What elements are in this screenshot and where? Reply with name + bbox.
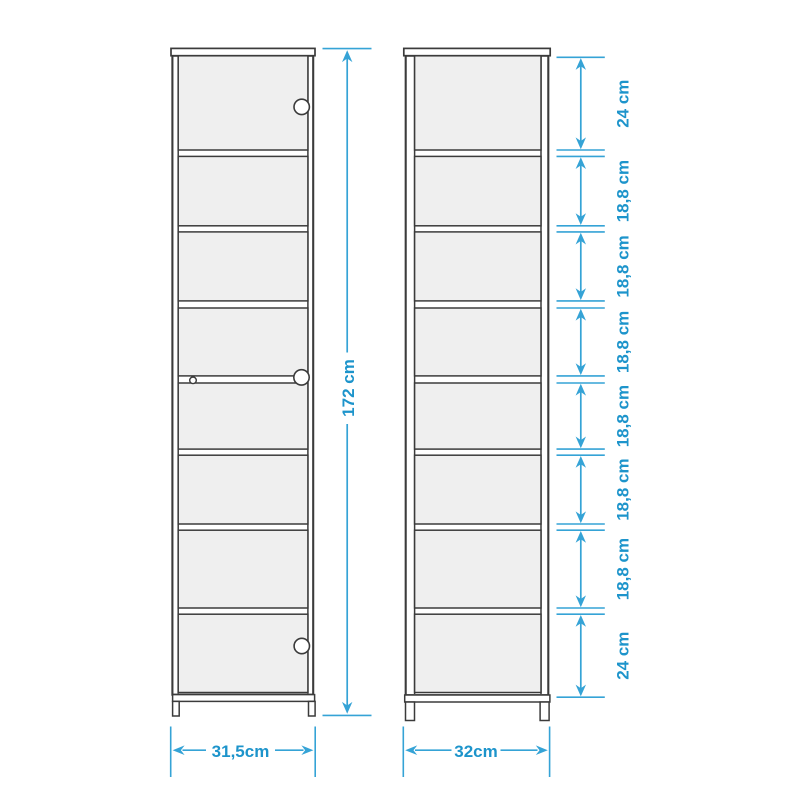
svg-text:18,8 cm: 18,8 cm <box>613 385 632 447</box>
svg-text:18,8 cm: 18,8 cm <box>613 458 632 520</box>
svg-text:24 cm: 24 cm <box>613 80 632 128</box>
svg-text:24 cm: 24 cm <box>613 632 632 680</box>
svg-text:18,8 cm: 18,8 cm <box>613 235 632 297</box>
svg-text:31,5cm: 31,5cm <box>212 742 270 761</box>
svg-text:18,8 cm: 18,8 cm <box>613 160 632 222</box>
svg-text:32cm: 32cm <box>454 742 497 761</box>
svg-text:18,8 cm: 18,8 cm <box>613 311 632 373</box>
svg-text:172 cm: 172 cm <box>339 359 358 417</box>
svg-text:18,8 cm: 18,8 cm <box>613 538 632 600</box>
